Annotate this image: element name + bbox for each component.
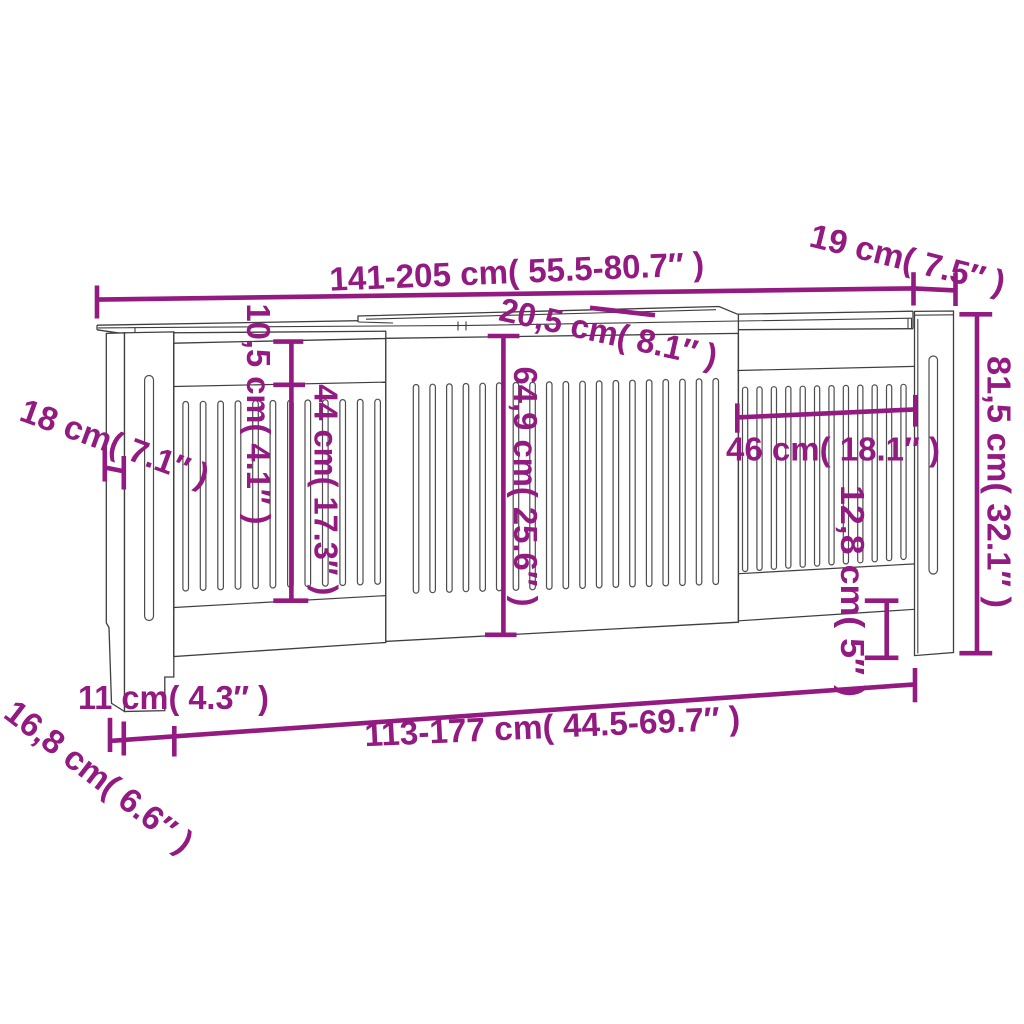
- svg-text:64,9 cm( 25.6″ ): 64,9 cm( 25.6″ ): [506, 367, 543, 607]
- svg-text:12,8 cm( 5″ ): 12,8 cm( 5″ ): [833, 485, 870, 697]
- svg-text:11 cm( 4.3″ ): 11 cm( 4.3″ ): [78, 680, 269, 717]
- svg-text:44 cm( 17.3″ ): 44 cm( 17.3″ ): [307, 384, 344, 595]
- svg-text:10,5 cm( 4.1″ ): 10,5 cm( 4.1″ ): [239, 304, 276, 525]
- svg-text:81,5 cm( 32.1″ ): 81,5 cm( 32.1″ ): [980, 356, 1017, 608]
- svg-text:46 cm( 18.1″ ): 46 cm( 18.1″ ): [726, 431, 940, 468]
